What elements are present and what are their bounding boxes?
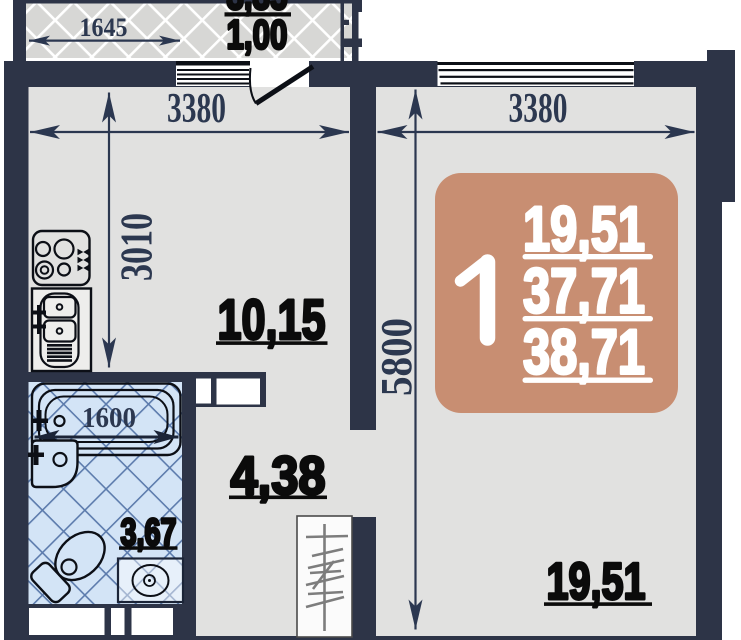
svg-text:3010: 3010 <box>112 213 162 281</box>
svg-text:38,71: 38,71 <box>523 318 645 388</box>
svg-text:1645: 1645 <box>80 13 128 42</box>
svg-text:5800: 5800 <box>372 318 421 396</box>
svg-text:1600: 1600 <box>82 403 136 434</box>
svg-text:1,00: 1,00 <box>227 12 288 58</box>
svg-text:3380: 3380 <box>167 86 226 132</box>
svg-text:3380: 3380 <box>509 86 568 132</box>
